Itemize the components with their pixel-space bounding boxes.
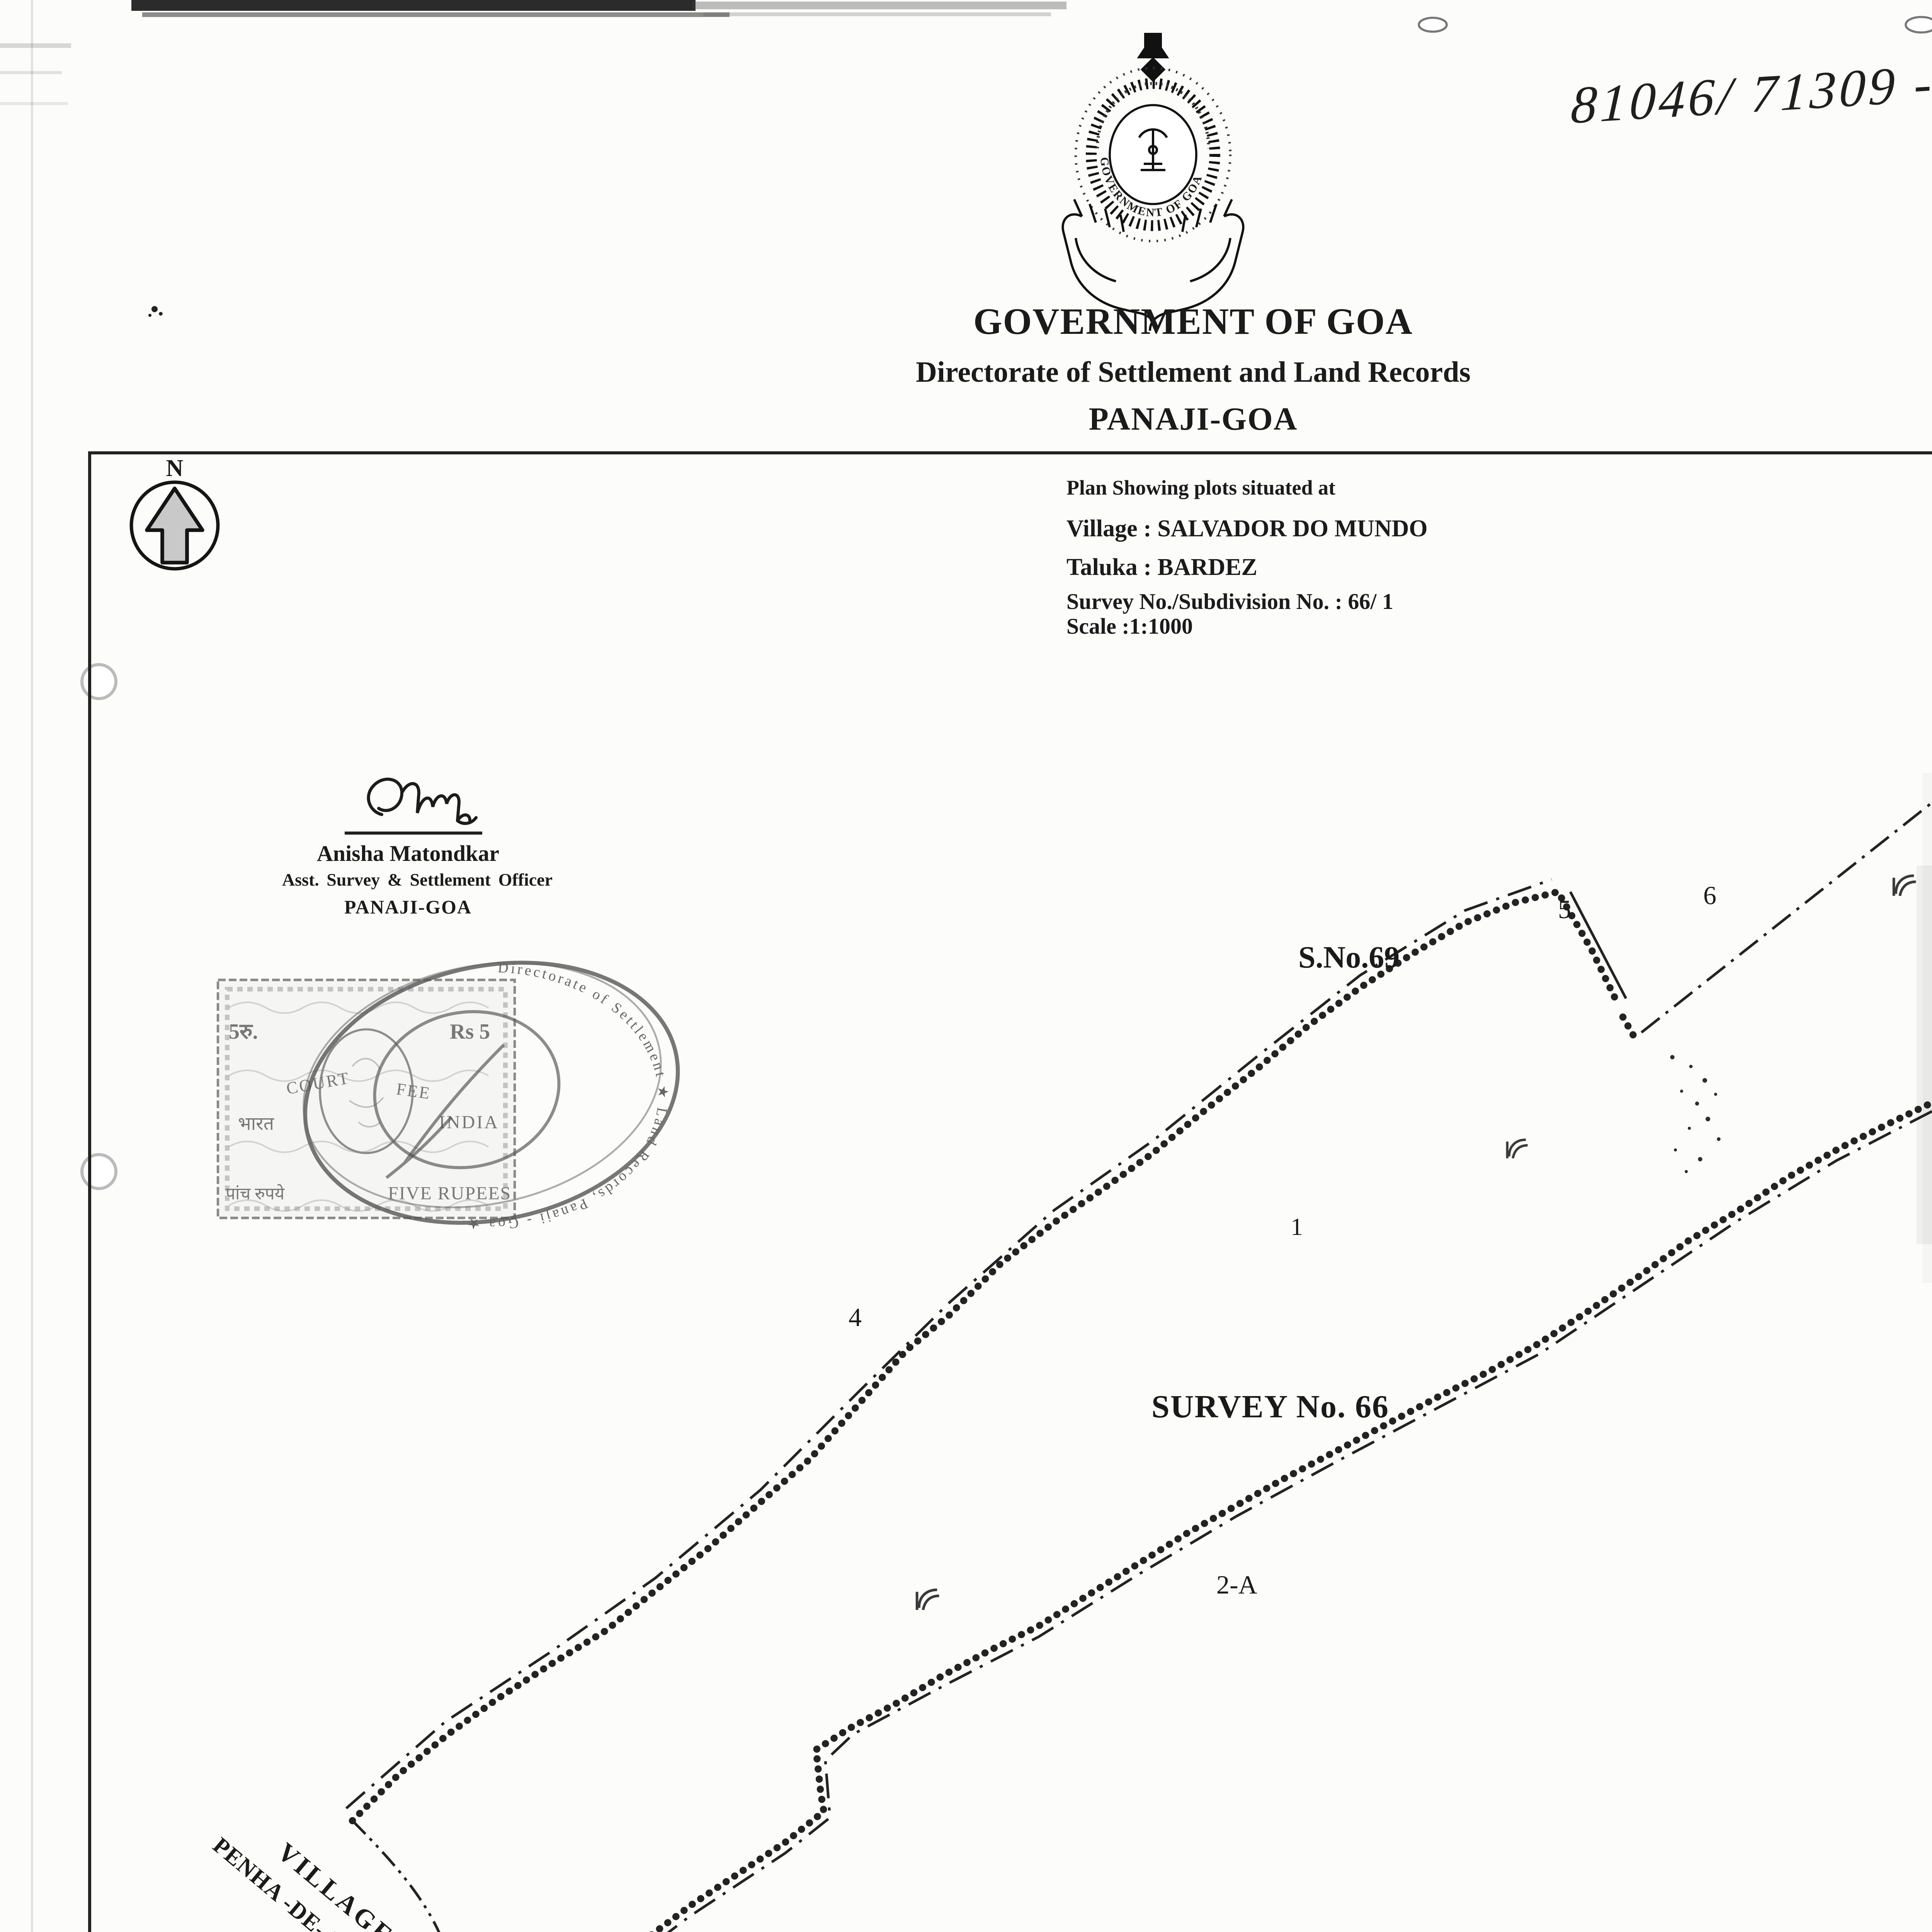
scanned-survey-plan-page: GOVERNMENT OF GOA GOVERNMENT OF GOA Dire…	[0, 0, 1932, 1932]
compared-signature-scribble	[0, 0, 1932, 1932]
